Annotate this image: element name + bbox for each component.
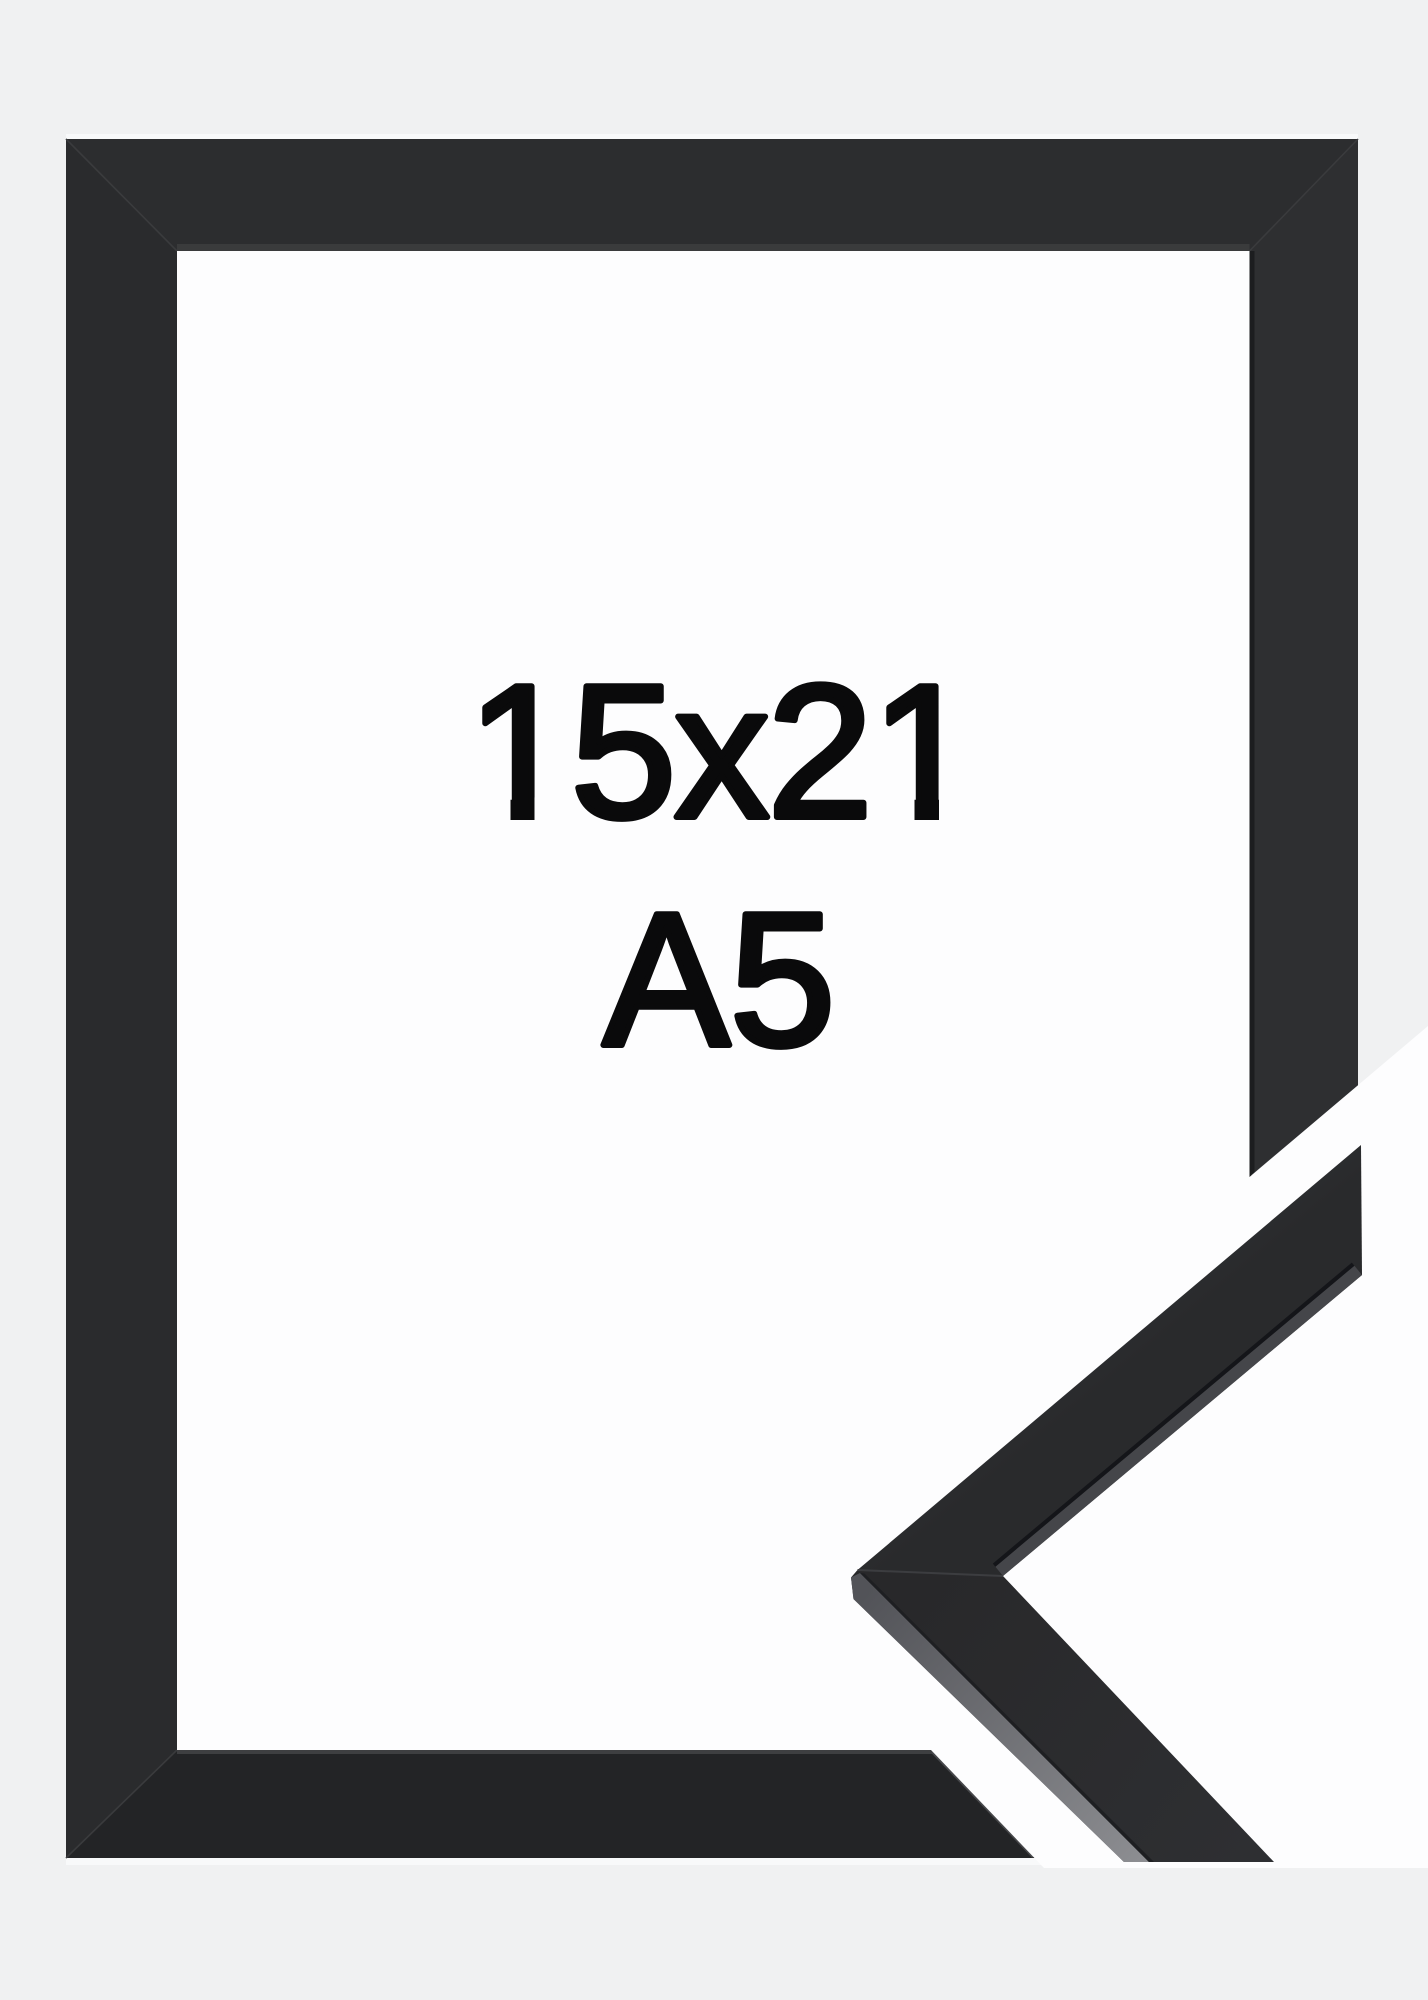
svg-text:A5: A5 (603, 874, 835, 1086)
svg-text:15x21: 15x21 (467, 646, 975, 858)
